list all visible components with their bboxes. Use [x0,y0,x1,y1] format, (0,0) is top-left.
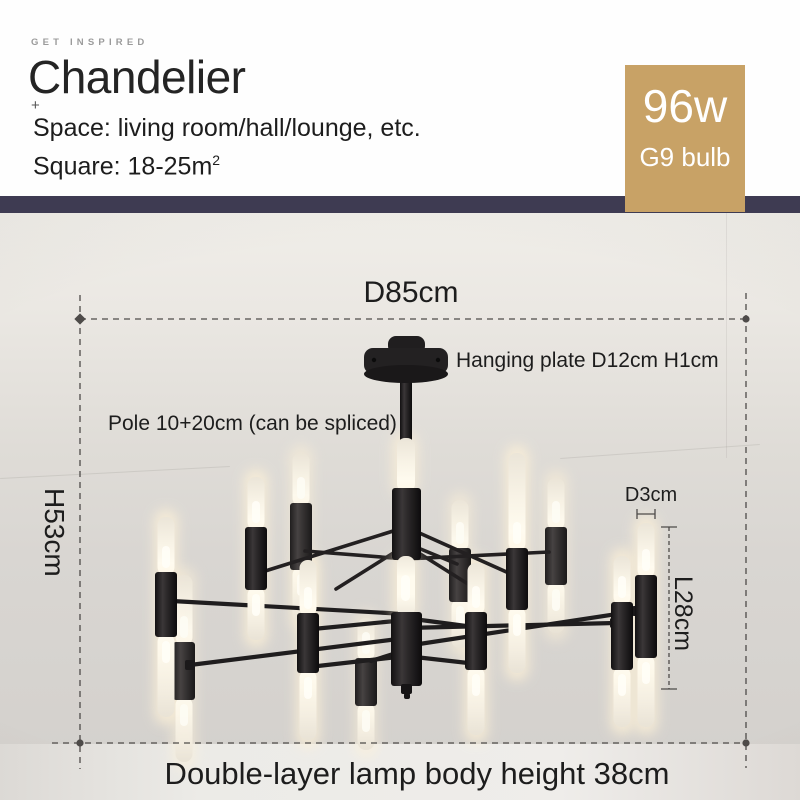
bulb-type-text: G9 bulb [625,142,745,172]
dot-marker [742,315,749,322]
wattage-text: 96w [625,81,745,131]
power-badge: 96w G9 bulb [625,65,745,212]
pole-label: Pole 10+20cm (can be spliced) [108,412,397,436]
lamp [506,453,528,673]
tube-length-label: L28cm [668,576,697,651]
body-height-label: Double-layer lamp body height 38cm [165,756,670,792]
diamond-marker [74,313,85,324]
width-dimension-label: D85cm [363,276,458,310]
dot-marker [742,739,749,746]
lamp [635,523,657,727]
hanging-pole [400,378,412,442]
lamp [611,556,633,727]
lamp [155,517,177,717]
lamp [545,478,567,633]
lamp [355,618,377,750]
hanging-plate-label: Hanging plate D12cm H1cm [456,349,719,373]
lamp [245,477,267,640]
dot-marker [76,739,83,746]
lamp [297,560,319,740]
tube-diameter-label: D3cm [625,484,677,507]
lamp [465,563,487,735]
height-dimension-label: H53cm [38,488,70,577]
product-infographic: GET INSPIRED Chandelier + Space: living … [0,0,800,800]
